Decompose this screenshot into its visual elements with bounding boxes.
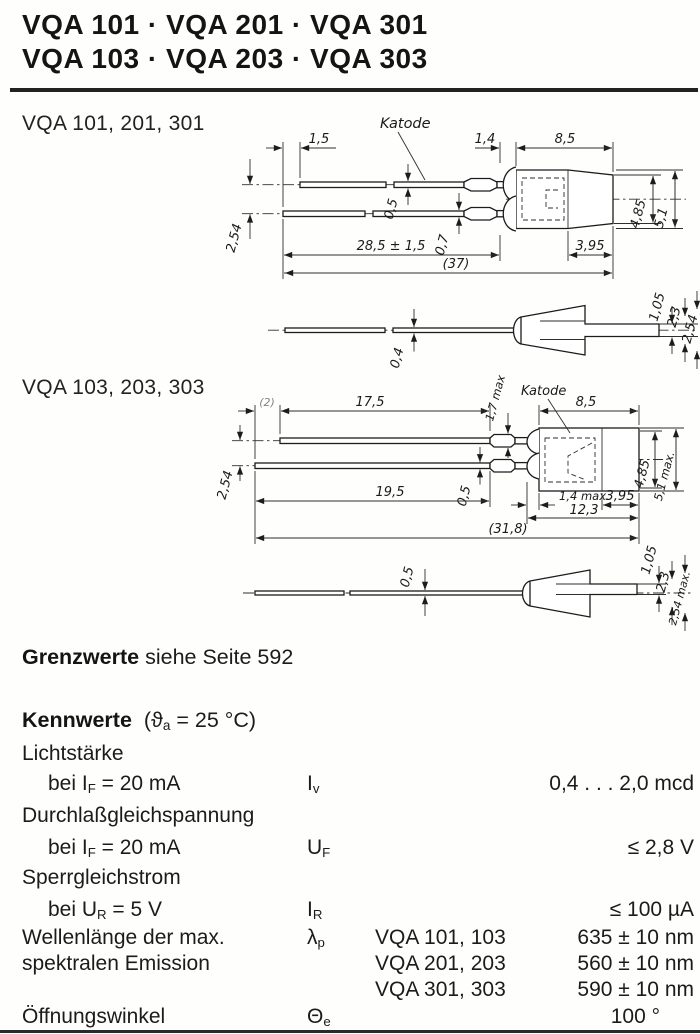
dim-4-85: 4,85 bbox=[628, 198, 650, 230]
grenzwerte-label: Grenzwerte bbox=[22, 645, 139, 669]
katode-leader-line bbox=[398, 132, 425, 180]
dim-1-05-2: 1,05 bbox=[639, 544, 661, 576]
dim-3-95-2: 3,95 bbox=[606, 489, 635, 504]
fig1-top-view bbox=[242, 167, 686, 231]
value-lichtstaerke: 0,4 . . . 2,0 mcd bbox=[549, 772, 694, 796]
figure1-technical-drawing: 1,5 1,4 8,5 Katode 0,5 0,7 28,5 ± 1,5 bbox=[228, 115, 698, 373]
dim-0-4: 0,4 bbox=[388, 346, 408, 370]
value-590: 590 ± 10 nm bbox=[577, 978, 694, 1002]
value-oeffnungswinkel: 100 ° bbox=[611, 1005, 660, 1029]
dim-8-5: 8,5 bbox=[555, 132, 576, 147]
group-label: Lichtstärke bbox=[22, 742, 124, 766]
dim-0-5-side: 0,5 bbox=[398, 565, 418, 589]
row-wellenlaenge-2: spektralen Emission VQA 201, 203 560 ± 1… bbox=[22, 952, 694, 980]
row-durchlass: bei IF = 20 mA UF ≤ 2,8 V bbox=[22, 836, 694, 864]
dim-2: (2) bbox=[259, 396, 275, 409]
fig1-side-body bbox=[521, 306, 659, 356]
value-635: 635 ± 10 nm bbox=[577, 926, 694, 950]
condition-label: bei UR = 5 V bbox=[48, 898, 162, 922]
fig1-dimensions: 1,5 1,4 8,5 Katode 0,5 0,7 28,5 ± 1,5 bbox=[224, 116, 683, 279]
dim-0-5: 0,5 bbox=[382, 197, 402, 221]
row-sperr: bei UR = 5 V IR ≤ 100 µA bbox=[22, 898, 694, 926]
group-label: Durchlaßgleichspannung bbox=[22, 804, 254, 828]
row-wellenlaenge-3: VQA 301, 303 590 ± 10 nm bbox=[22, 978, 694, 1006]
dim-17-5: 17,5 bbox=[356, 395, 385, 410]
grenzwerte-line: Grenzwerte siehe Seite 592 bbox=[22, 645, 293, 670]
dim-28-5: 28,5 ± 1,5 bbox=[357, 239, 426, 254]
fig2-package-body bbox=[539, 428, 639, 491]
page-bottom-rule bbox=[0, 1030, 700, 1033]
title-line-2: VQA 103 · VQA 203 · VQA 303 bbox=[22, 42, 428, 76]
group-label: Sperrgleichstrom bbox=[22, 866, 181, 890]
value-sperr: ≤ 100 µA bbox=[610, 898, 694, 922]
row-lichtstaerke-group: Lichtstärke bbox=[22, 742, 694, 770]
fig2-top-view bbox=[232, 428, 663, 491]
dim-1-7-max: 1,7 max bbox=[482, 373, 508, 422]
fig2-side-body bbox=[530, 570, 637, 617]
row-durchlass-group: Durchlaßgleichspannung bbox=[22, 804, 694, 832]
figure1-caption: VQA 101, 201, 301 bbox=[22, 112, 205, 136]
grenzwerte-rest: siehe Seite 592 bbox=[139, 645, 293, 669]
figure2-technical-drawing: (2) 17,5 1,7 max Katode 8,5 2,54 0,5 bbox=[218, 383, 700, 635]
dim-0-5-2: 0,5 bbox=[455, 484, 475, 508]
figure2-caption: VQA 103, 203, 303 bbox=[22, 376, 205, 400]
dim-0-7: 0,7 bbox=[433, 232, 453, 257]
dim-12-3: 12,3 bbox=[570, 503, 599, 518]
symbol-UF: UF bbox=[307, 836, 330, 860]
dim-2-54: 2,54 bbox=[224, 222, 246, 254]
dim-3-95: 3,95 bbox=[576, 239, 605, 254]
type-vqa-301-303: VQA 301, 303 bbox=[375, 978, 506, 1002]
symbol-theta-e: Θe bbox=[307, 1005, 331, 1029]
symbol-Iv: Iv bbox=[307, 772, 319, 796]
dim-2-3-2: 2,3 bbox=[654, 570, 674, 594]
row-wellenlaenge-1: Wellenlänge der max. λp VQA 101, 103 635… bbox=[22, 926, 694, 954]
row-lichtstaerke: bei IF = 20 mA Iv 0,4 . . . 2,0 mcd bbox=[22, 772, 694, 800]
dim-5-1: 5,1 bbox=[652, 206, 672, 230]
kennwerte-condition: (ϑa = 25 °C) bbox=[144, 708, 256, 732]
katode-label: Katode bbox=[380, 116, 431, 132]
type-vqa-201-203: VQA 201, 203 bbox=[375, 952, 506, 976]
fig1-side-view: 0,4 1,05 2,3 2,54 bbox=[268, 291, 700, 370]
dim-37: (37) bbox=[443, 257, 470, 272]
dim-1-05: 1,05 bbox=[647, 291, 669, 323]
type-vqa-101-103: VQA 101, 103 bbox=[375, 926, 506, 950]
title-line-1: VQA 101 · VQA 201 · VQA 301 bbox=[22, 8, 428, 42]
row-sperr-group: Sperrgleichstrom bbox=[22, 866, 694, 894]
fig2-side-view: 0,5 1,05 2,3 2,54 max. bbox=[243, 544, 693, 631]
kennwerte-heading: Kennwerte(ϑa = 25 °C) bbox=[22, 708, 256, 733]
symbol-lambda-p: λp bbox=[307, 926, 325, 950]
condition-label: bei IF = 20 mA bbox=[48, 772, 180, 796]
kennwerte-title: Kennwerte bbox=[22, 708, 132, 732]
dim-2-54-2: 2,54 bbox=[215, 469, 237, 501]
wellenlaenge-label-1: Wellenlänge der max. bbox=[22, 926, 225, 950]
dim-1-4: 1,4 bbox=[475, 132, 496, 147]
header-divider bbox=[10, 88, 698, 92]
dim-1-5: 1,5 bbox=[309, 132, 330, 147]
row-oeffnungswinkel: Öffnungswinkel Θe 100 ° bbox=[22, 1005, 694, 1033]
katode-label-2: Katode bbox=[521, 384, 566, 399]
oeffnungswinkel-label: Öffnungswinkel bbox=[22, 1005, 165, 1029]
value-durchlass: ≤ 2,8 V bbox=[628, 836, 694, 860]
dim-31-8: (31,8) bbox=[488, 522, 527, 537]
symbol-IR: IR bbox=[307, 898, 322, 922]
dim-2-3: 2,3 bbox=[665, 305, 685, 329]
wellenlaenge-label-2: spektralen Emission bbox=[22, 952, 210, 976]
datasheet-page: VQA 101 · VQA 201 · VQA 301 VQA 103 · VQ… bbox=[0, 0, 700, 1034]
condition-label: bei IF = 20 mA bbox=[48, 836, 180, 860]
value-560: 560 ± 10 nm bbox=[577, 952, 694, 976]
fig1-package-body bbox=[516, 170, 613, 229]
dim-2-54-side: 2,54 bbox=[680, 313, 700, 345]
dim-19-5: 19,5 bbox=[376, 485, 405, 500]
page-title: VQA 101 · VQA 201 · VQA 301 VQA 103 · VQ… bbox=[22, 8, 428, 76]
dim-8-5-2: 8,5 bbox=[576, 395, 597, 410]
